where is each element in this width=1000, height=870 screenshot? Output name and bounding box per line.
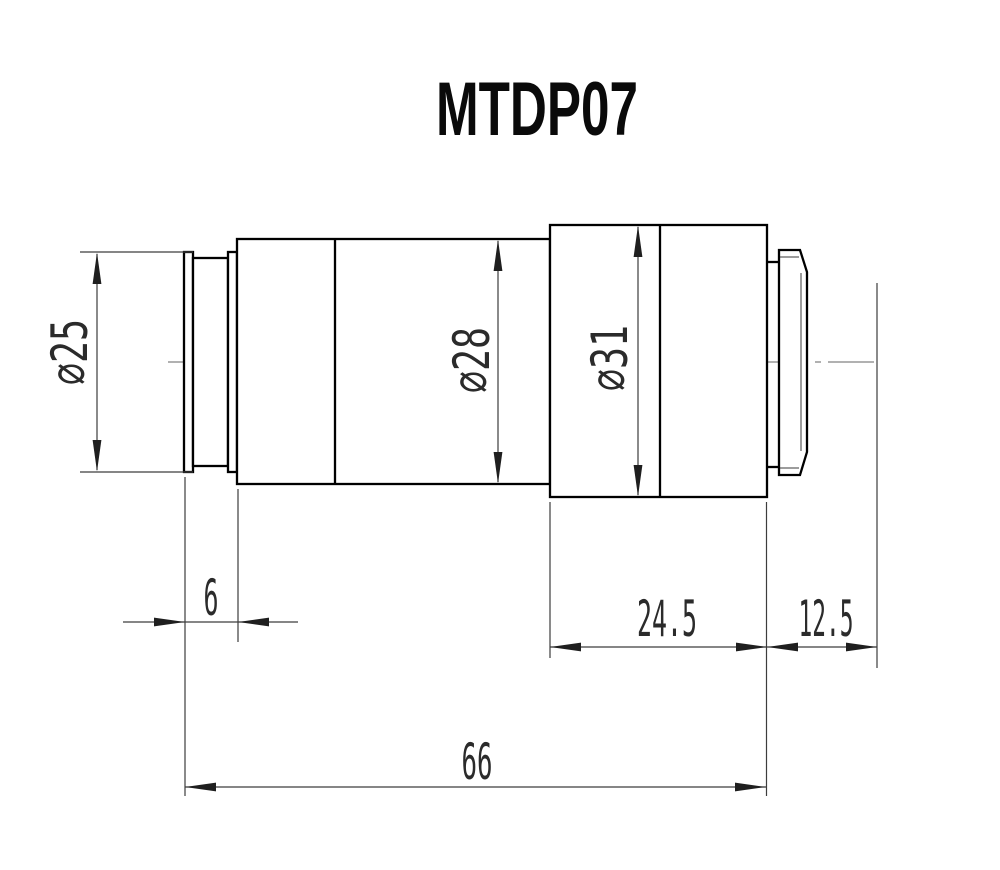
drawing-canvas: MTDP07 ⌀25 [0,0,1000,870]
arrowhead-left [238,618,269,627]
dimension-label: 66 [462,733,493,791]
arrowhead-left [767,643,798,652]
rear-chamfered-ring [779,250,807,475]
dim-length-66: 66 [185,733,766,791]
front-recess-section [193,258,228,466]
page-title: MTDP07 [436,67,638,152]
dimension-label: ⌀25 [41,319,99,385]
arrowhead-right [736,643,767,652]
arrowhead-up [93,253,102,285]
front-flange-ring [184,252,193,472]
dimension-label: 12.5 [799,590,854,648]
dimension-label: ⌀28 [443,327,501,393]
arrowhead-down [93,440,102,472]
dimension-label: 6 [204,569,219,627]
arrowhead-left [185,783,216,792]
arrowhead-right [735,783,766,792]
front-ring [228,252,237,472]
main-barrel [237,239,550,484]
dimension-label: ⌀31 [581,325,639,391]
arrowhead-right [154,618,185,627]
arrowhead-left [550,643,581,652]
dim-length-6: 6 [123,477,298,796]
dim-length-24-5: 24.5 [550,502,767,796]
technical-drawing-sheet: MTDP07 ⌀25 [0,0,1000,870]
dimension-label: 24.5 [637,590,697,648]
